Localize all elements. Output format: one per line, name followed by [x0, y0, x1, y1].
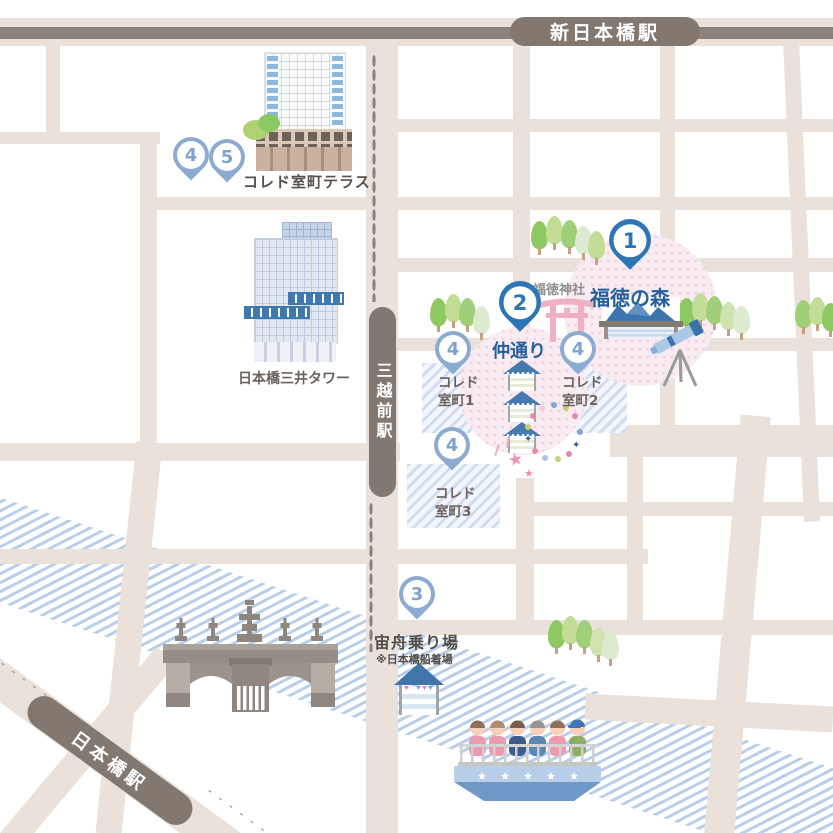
confetti-star: ★ [506, 451, 524, 471]
label-coredo2: コレド 室町2 [562, 374, 603, 410]
station-label: 新日本橋駅 [550, 18, 660, 45]
road [140, 132, 157, 447]
road [0, 443, 400, 461]
tree [602, 632, 619, 660]
railway-dots [369, 502, 373, 652]
confetti-star: ✦ [524, 435, 532, 445]
station-mitsukoshimae[interactable]: 三越前駅 [369, 307, 396, 497]
road [516, 502, 833, 516]
station-label: 三越前駅 [371, 362, 395, 442]
bush [258, 114, 280, 132]
label-dock-note: ※日本橋船着場 [376, 651, 453, 667]
building-band [288, 292, 344, 305]
pin-number: 4 [438, 431, 466, 459]
label-fukutoku-shrine: 福徳神社 [533, 279, 585, 298]
road [140, 197, 833, 210]
confetti-wreath: ✦ ✦ [524, 402, 586, 464]
tree [473, 306, 490, 334]
label-line: 室町1 [438, 393, 474, 409]
label-nakadori: 仲通り [492, 337, 546, 363]
tree [588, 231, 605, 259]
tree [733, 306, 750, 334]
pin-number: 4 [439, 335, 467, 363]
label-coredo3: コレド 室町3 [435, 485, 476, 521]
label-line: 室町2 [562, 393, 598, 409]
station-shin-nihonbashi[interactable]: 新日本橋駅 [510, 17, 700, 46]
nihonbashi-bridge-icon [163, 598, 338, 716]
building-podium [256, 129, 352, 171]
pin-number: 4 [564, 335, 592, 363]
road [398, 119, 833, 132]
label-line: コレド [435, 486, 476, 502]
cruise-boat-icon [452, 710, 604, 804]
dock-tent-icon [390, 663, 448, 715]
label-dock: 宙舟乗り場 [374, 629, 459, 653]
pin-number: 1 [614, 224, 647, 257]
road [46, 46, 60, 134]
confetti-star: ✦ [572, 441, 580, 451]
building-band [244, 306, 310, 319]
road [627, 448, 643, 633]
pin-number: 4 [177, 141, 205, 169]
road [516, 478, 534, 635]
label-line: コレド [438, 375, 479, 391]
map-canvas: ✦ ✦ ★ ★ 新日本橋駅 三越前駅 日本橋駅 コレド室町テラス 日本橋三井タワ… [0, 0, 833, 833]
road [0, 549, 648, 564]
railway-dots [372, 54, 376, 302]
confetti-star: ★ [524, 468, 534, 479]
pin-number: 5 [213, 143, 241, 171]
railway-line [0, 27, 833, 39]
label-line: 室町3 [435, 504, 471, 520]
label-mitsui-tower: 日本橋三井タワー [238, 368, 350, 388]
road [0, 132, 160, 144]
market-tent-icon [501, 360, 543, 391]
pin-number: 3 [403, 580, 431, 608]
building-base [254, 342, 336, 362]
label-fukutoku-mori: 福徳の森 [590, 282, 670, 311]
label-coredo-terrace: コレド室町テラス [243, 171, 371, 192]
tree [822, 303, 833, 331]
label-coredo1: コレド 室町1 [438, 374, 479, 410]
telescope-icon [648, 300, 712, 390]
label-line: コレド [562, 375, 603, 391]
pin-number: 2 [504, 286, 537, 319]
pin-3-dock[interactable]: 3 [392, 569, 443, 620]
building-tower [254, 238, 338, 344]
coredo-terrace-building [256, 52, 352, 172]
mitsui-tower-building [252, 222, 348, 362]
